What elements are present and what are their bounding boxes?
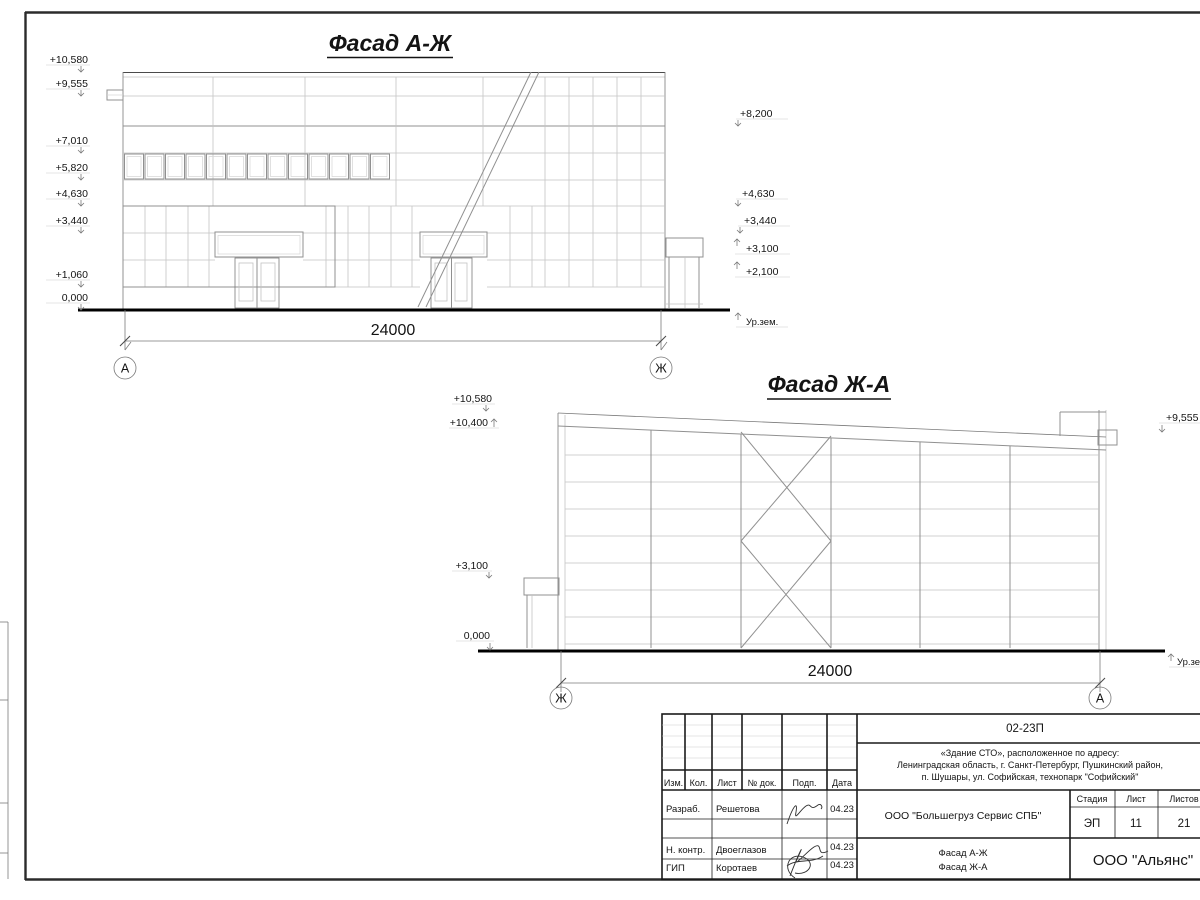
elevation-mark: +3,440	[737, 215, 790, 233]
svg-text:+3,440: +3,440	[56, 215, 89, 227]
sheet-header: Лист	[1126, 794, 1146, 804]
sheet-title-line1: Фасад А-Ж	[939, 848, 988, 859]
svg-text:+1,060: +1,060	[56, 269, 89, 281]
role: Н. контр.	[666, 845, 705, 856]
svg-text:+3,440: +3,440	[744, 215, 777, 227]
elevation-marks-right: +9,555 Ур.зем.	[1159, 412, 1200, 668]
svg-text:Ур.зем.: Ур.зем.	[1177, 657, 1200, 668]
storefront-glazing	[123, 206, 532, 287]
svg-text:0,000: 0,000	[62, 292, 88, 304]
elevation-mark: +10,580	[46, 54, 90, 72]
elevation-marks-left: +10,580 +10,400 +3,100 0,000	[449, 393, 499, 650]
svg-text:Ур.зем.: Ур.зем.	[746, 317, 778, 328]
col-data: Дата	[832, 778, 852, 788]
facade-ja-drawing: Фасад Ж-А	[449, 371, 1200, 709]
dimension-24000: 24000	[556, 651, 1105, 692]
svg-text:+8,200: +8,200	[740, 108, 773, 120]
date: 04.23	[830, 804, 854, 815]
svg-text:0,000: 0,000	[464, 630, 490, 642]
name: Коротаев	[716, 863, 757, 874]
svg-text:+4,630: +4,630	[56, 188, 89, 200]
sheet-value: 11	[1130, 818, 1142, 830]
col-list: Лист	[717, 778, 737, 788]
col-doc: № док.	[748, 778, 777, 788]
entrance-door-1	[215, 232, 303, 308]
wall-fixture-box	[107, 90, 123, 100]
role: ГИП	[666, 863, 685, 874]
svg-text:+9,555: +9,555	[56, 78, 89, 90]
elevation-mark: +3,100	[734, 239, 790, 255]
elevation-mark: +9,555	[46, 78, 90, 96]
elevation-mark: +3,440	[46, 215, 90, 233]
elevation-marks-left: +10,580 +9,555 +7,010 +5,820 +4,630 +3,4…	[46, 54, 90, 310]
svg-text:+5,820: +5,820	[56, 162, 89, 174]
stage-header: Стадия	[1077, 794, 1108, 804]
name: Решетова	[716, 804, 760, 815]
dimension-24000: 24000	[120, 310, 666, 350]
axis-letter: Ж	[655, 362, 667, 376]
drawing-sheet: Фасад А-Ж	[0, 0, 1200, 900]
svg-text:+4,630: +4,630	[742, 188, 775, 200]
ground-level-mark: Ур.зем.	[735, 313, 788, 328]
address-line1: «Здание СТО», расположенное по адресу:	[941, 748, 1120, 758]
facade-aj-title: Фасад А-Ж	[329, 30, 453, 56]
frame-columns	[651, 430, 1010, 648]
stage-value: ЭП	[1084, 818, 1101, 830]
facade-ja-title: Фасад Ж-А	[768, 371, 891, 397]
svg-text:+10,580: +10,580	[454, 393, 492, 405]
address-line3: п. Шушары, ул. Софийская, технопарк "Соф…	[922, 772, 1139, 782]
ribbon-window-band	[125, 154, 390, 179]
left-margin-cells	[0, 622, 8, 879]
elevation-marks-right: +8,200 +4,630 +3,440 +3,100 +2,100 Ур.зе…	[734, 108, 790, 328]
elevation-mark: +1,060	[46, 269, 90, 287]
elevation-mark: +4,630	[735, 188, 788, 206]
col-izm: Изм.	[664, 778, 683, 788]
entrance-door-2	[420, 232, 487, 308]
stamp-row-ncontr: Н. контр. Двоеглазов 04.23	[666, 842, 854, 856]
facade-aj-drawing: Фасад А-Ж	[46, 30, 790, 379]
elevation-mark: +8,200	[735, 108, 788, 126]
sheet-title-line2: Фасад Ж-А	[939, 862, 989, 873]
axis-letter: А	[1096, 692, 1105, 706]
elevation-mark: +9,555	[1159, 412, 1200, 432]
rooftop-unit	[1060, 412, 1117, 445]
svg-text:+3,100: +3,100	[746, 243, 779, 255]
svg-text:+10,580: +10,580	[50, 54, 88, 66]
elevation-mark: +5,820	[46, 162, 90, 180]
col-kol: Кол.	[690, 778, 708, 788]
stamp-row-razrab: Разраб. Решетова 04.23	[666, 804, 854, 815]
elevation-mark: 0,000	[46, 292, 90, 310]
org-name: ООО "Альянс"	[1093, 852, 1193, 869]
col-podp: Подп.	[793, 778, 817, 788]
title-block: Изм. Кол. Лист № док. Подп. Дата Разраб.…	[662, 714, 1200, 880]
elevation-mark: +10,580	[452, 393, 495, 411]
svg-text:+3,100: +3,100	[456, 560, 489, 572]
svg-text:+10,400: +10,400	[450, 417, 488, 429]
dimension-value: 24000	[371, 322, 416, 339]
address-line2: Ленинградская область, г. Санкт-Петербур…	[897, 760, 1163, 770]
company-name: ООО "Большегруз Сервис СПБ"	[885, 810, 1042, 822]
doc-number: 02-23П	[1006, 723, 1044, 735]
elevation-mark: +4,630	[46, 188, 90, 206]
stamp-row-gip: ГИП Коротаев 04.23	[666, 860, 854, 874]
siding-lines	[565, 455, 1099, 644]
signature-1	[787, 804, 822, 824]
elevation-mark: +3,100	[452, 560, 492, 578]
svg-text:+9,555: +9,555	[1166, 412, 1199, 424]
elevation-mark: +10,400	[449, 417, 499, 429]
x-bracing	[741, 432, 831, 648]
dimension-value: 24000	[808, 663, 853, 680]
axis-letter: А	[121, 362, 130, 376]
side-canopy-right	[666, 238, 703, 308]
date: 04.23	[830, 860, 854, 871]
left-annex	[524, 578, 559, 648]
elevation-mark: +7,010	[46, 135, 90, 153]
elevation-mark: +2,100	[734, 262, 790, 278]
signature-2	[787, 846, 828, 878]
svg-text:+2,100: +2,100	[746, 266, 779, 278]
svg-text:+7,010: +7,010	[56, 135, 89, 147]
diagonal-ramp-line	[418, 72, 539, 307]
elevation-mark: 0,000	[456, 630, 494, 650]
sheets-header: Листов	[1169, 794, 1198, 804]
sheets-value: 21	[1178, 818, 1191, 830]
ground-level-mark: Ур.зем.	[1168, 654, 1200, 668]
axis-letter: Ж	[555, 692, 567, 706]
name: Двоеглазов	[716, 845, 767, 856]
role: Разраб.	[666, 804, 700, 815]
date: 04.23	[830, 842, 854, 853]
